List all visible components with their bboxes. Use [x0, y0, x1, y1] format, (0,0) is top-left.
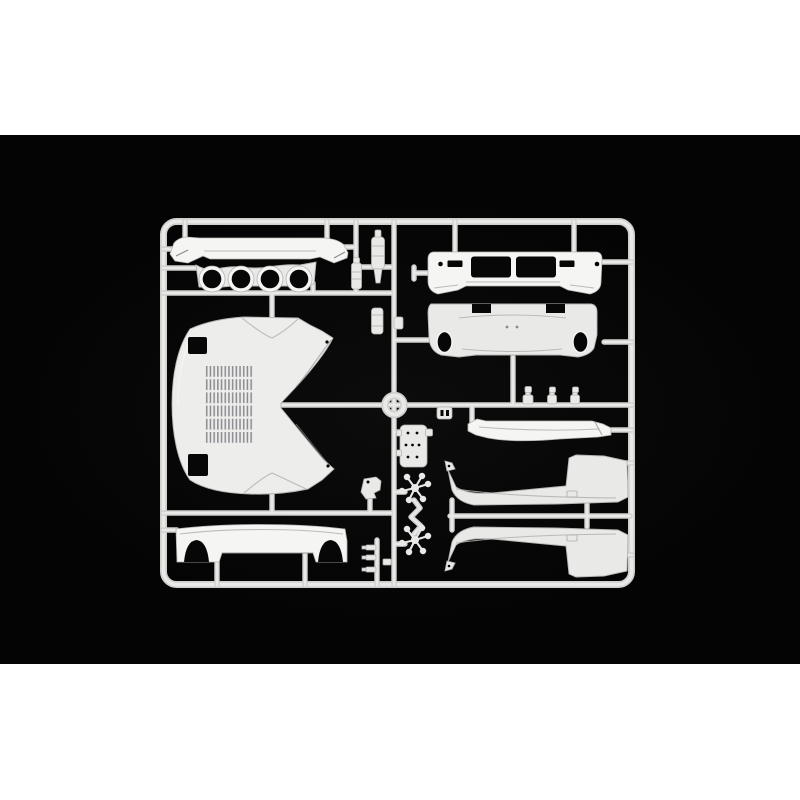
- front-bumper: [428, 252, 602, 294]
- rear-wing: [170, 237, 348, 263]
- mirror-fittings: [523, 387, 580, 405]
- rear-valance: [176, 525, 347, 563]
- hood-vent-grille: [205, 366, 253, 445]
- canister-upper: [372, 230, 385, 283]
- fitting-2: [548, 387, 557, 404]
- side-skirt-lower: [445, 527, 628, 577]
- white-band-bottom: [0, 664, 800, 800]
- plate-bracket: [397, 425, 433, 467]
- fitting-3: [571, 387, 580, 404]
- fitting-1: [523, 387, 533, 405]
- side-skirt-upper: [445, 455, 628, 505]
- caliper-bracket: [361, 477, 381, 499]
- white-band-top: [0, 0, 800, 135]
- quad-lamp-panel: [196, 262, 316, 292]
- page: [0, 0, 800, 800]
- front-spoiler: [468, 419, 611, 441]
- canister-lower: [372, 308, 404, 334]
- product-photo: [0, 135, 800, 664]
- bolt-part: [352, 258, 362, 290]
- clip-part: [437, 407, 452, 419]
- rear-panel: [428, 304, 597, 357]
- sprue-illustration: [0, 135, 800, 664]
